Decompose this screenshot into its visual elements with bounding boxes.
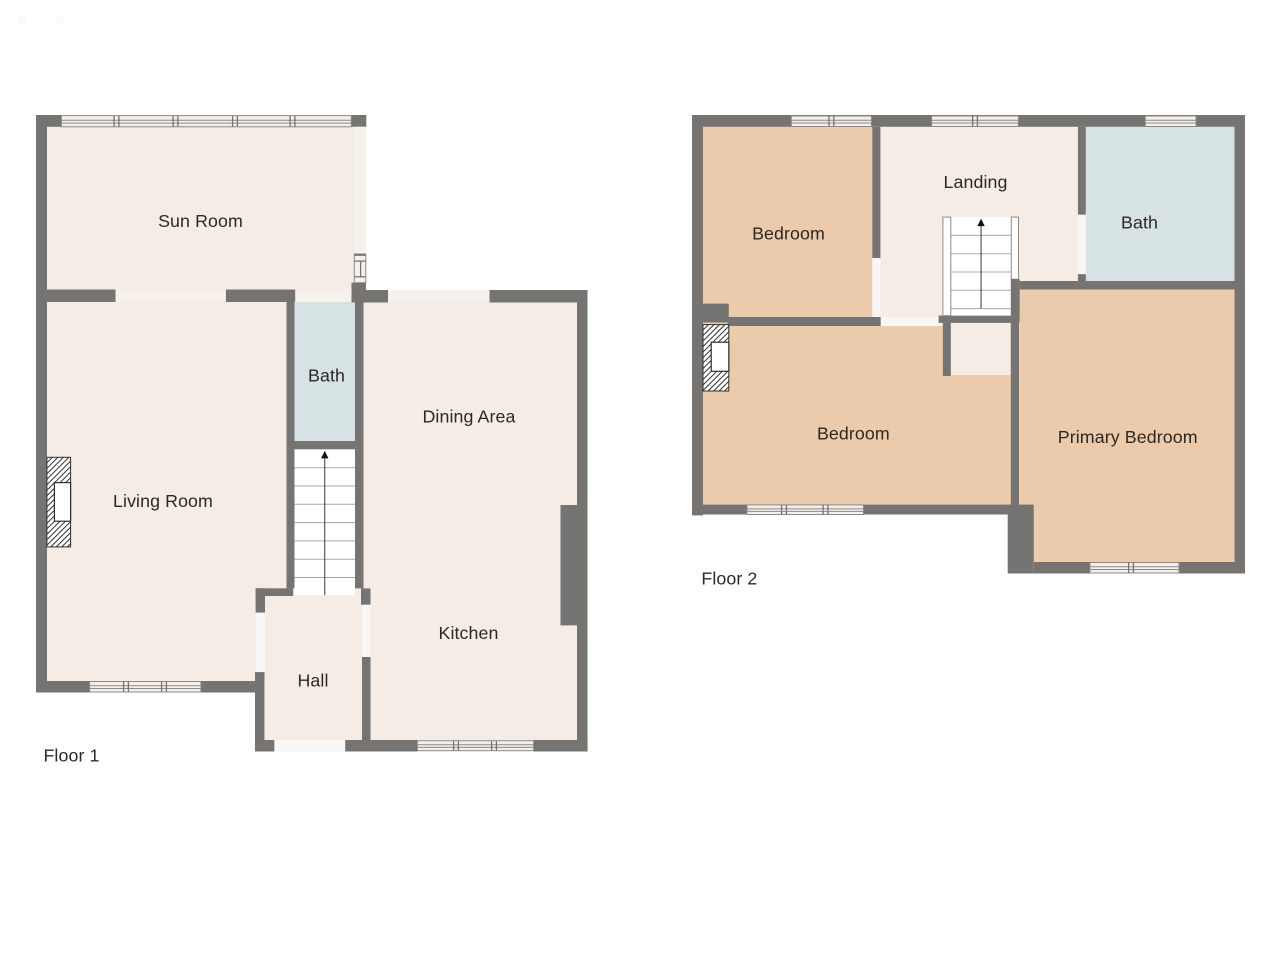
svg-text:Bedroom: Bedroom — [752, 224, 825, 244]
svg-text:Hall: Hall — [297, 671, 328, 691]
svg-text:Bedroom: Bedroom — [817, 424, 890, 444]
svg-text:Floor 2: Floor 2 — [701, 568, 757, 588]
svg-text:Sun Room: Sun Room — [158, 211, 243, 231]
svg-text:Dining Area: Dining Area — [422, 407, 515, 427]
svg-text:Landing: Landing — [944, 172, 1008, 192]
svg-text:Bath: Bath — [1121, 213, 1158, 233]
svg-text:Living Room: Living Room — [113, 491, 213, 511]
svg-text:Bath: Bath — [308, 366, 345, 386]
svg-text:Floor 1: Floor 1 — [43, 746, 99, 766]
svg-text:Primary Bedroom: Primary Bedroom — [1058, 427, 1198, 447]
svg-text:Kitchen: Kitchen — [438, 623, 498, 643]
